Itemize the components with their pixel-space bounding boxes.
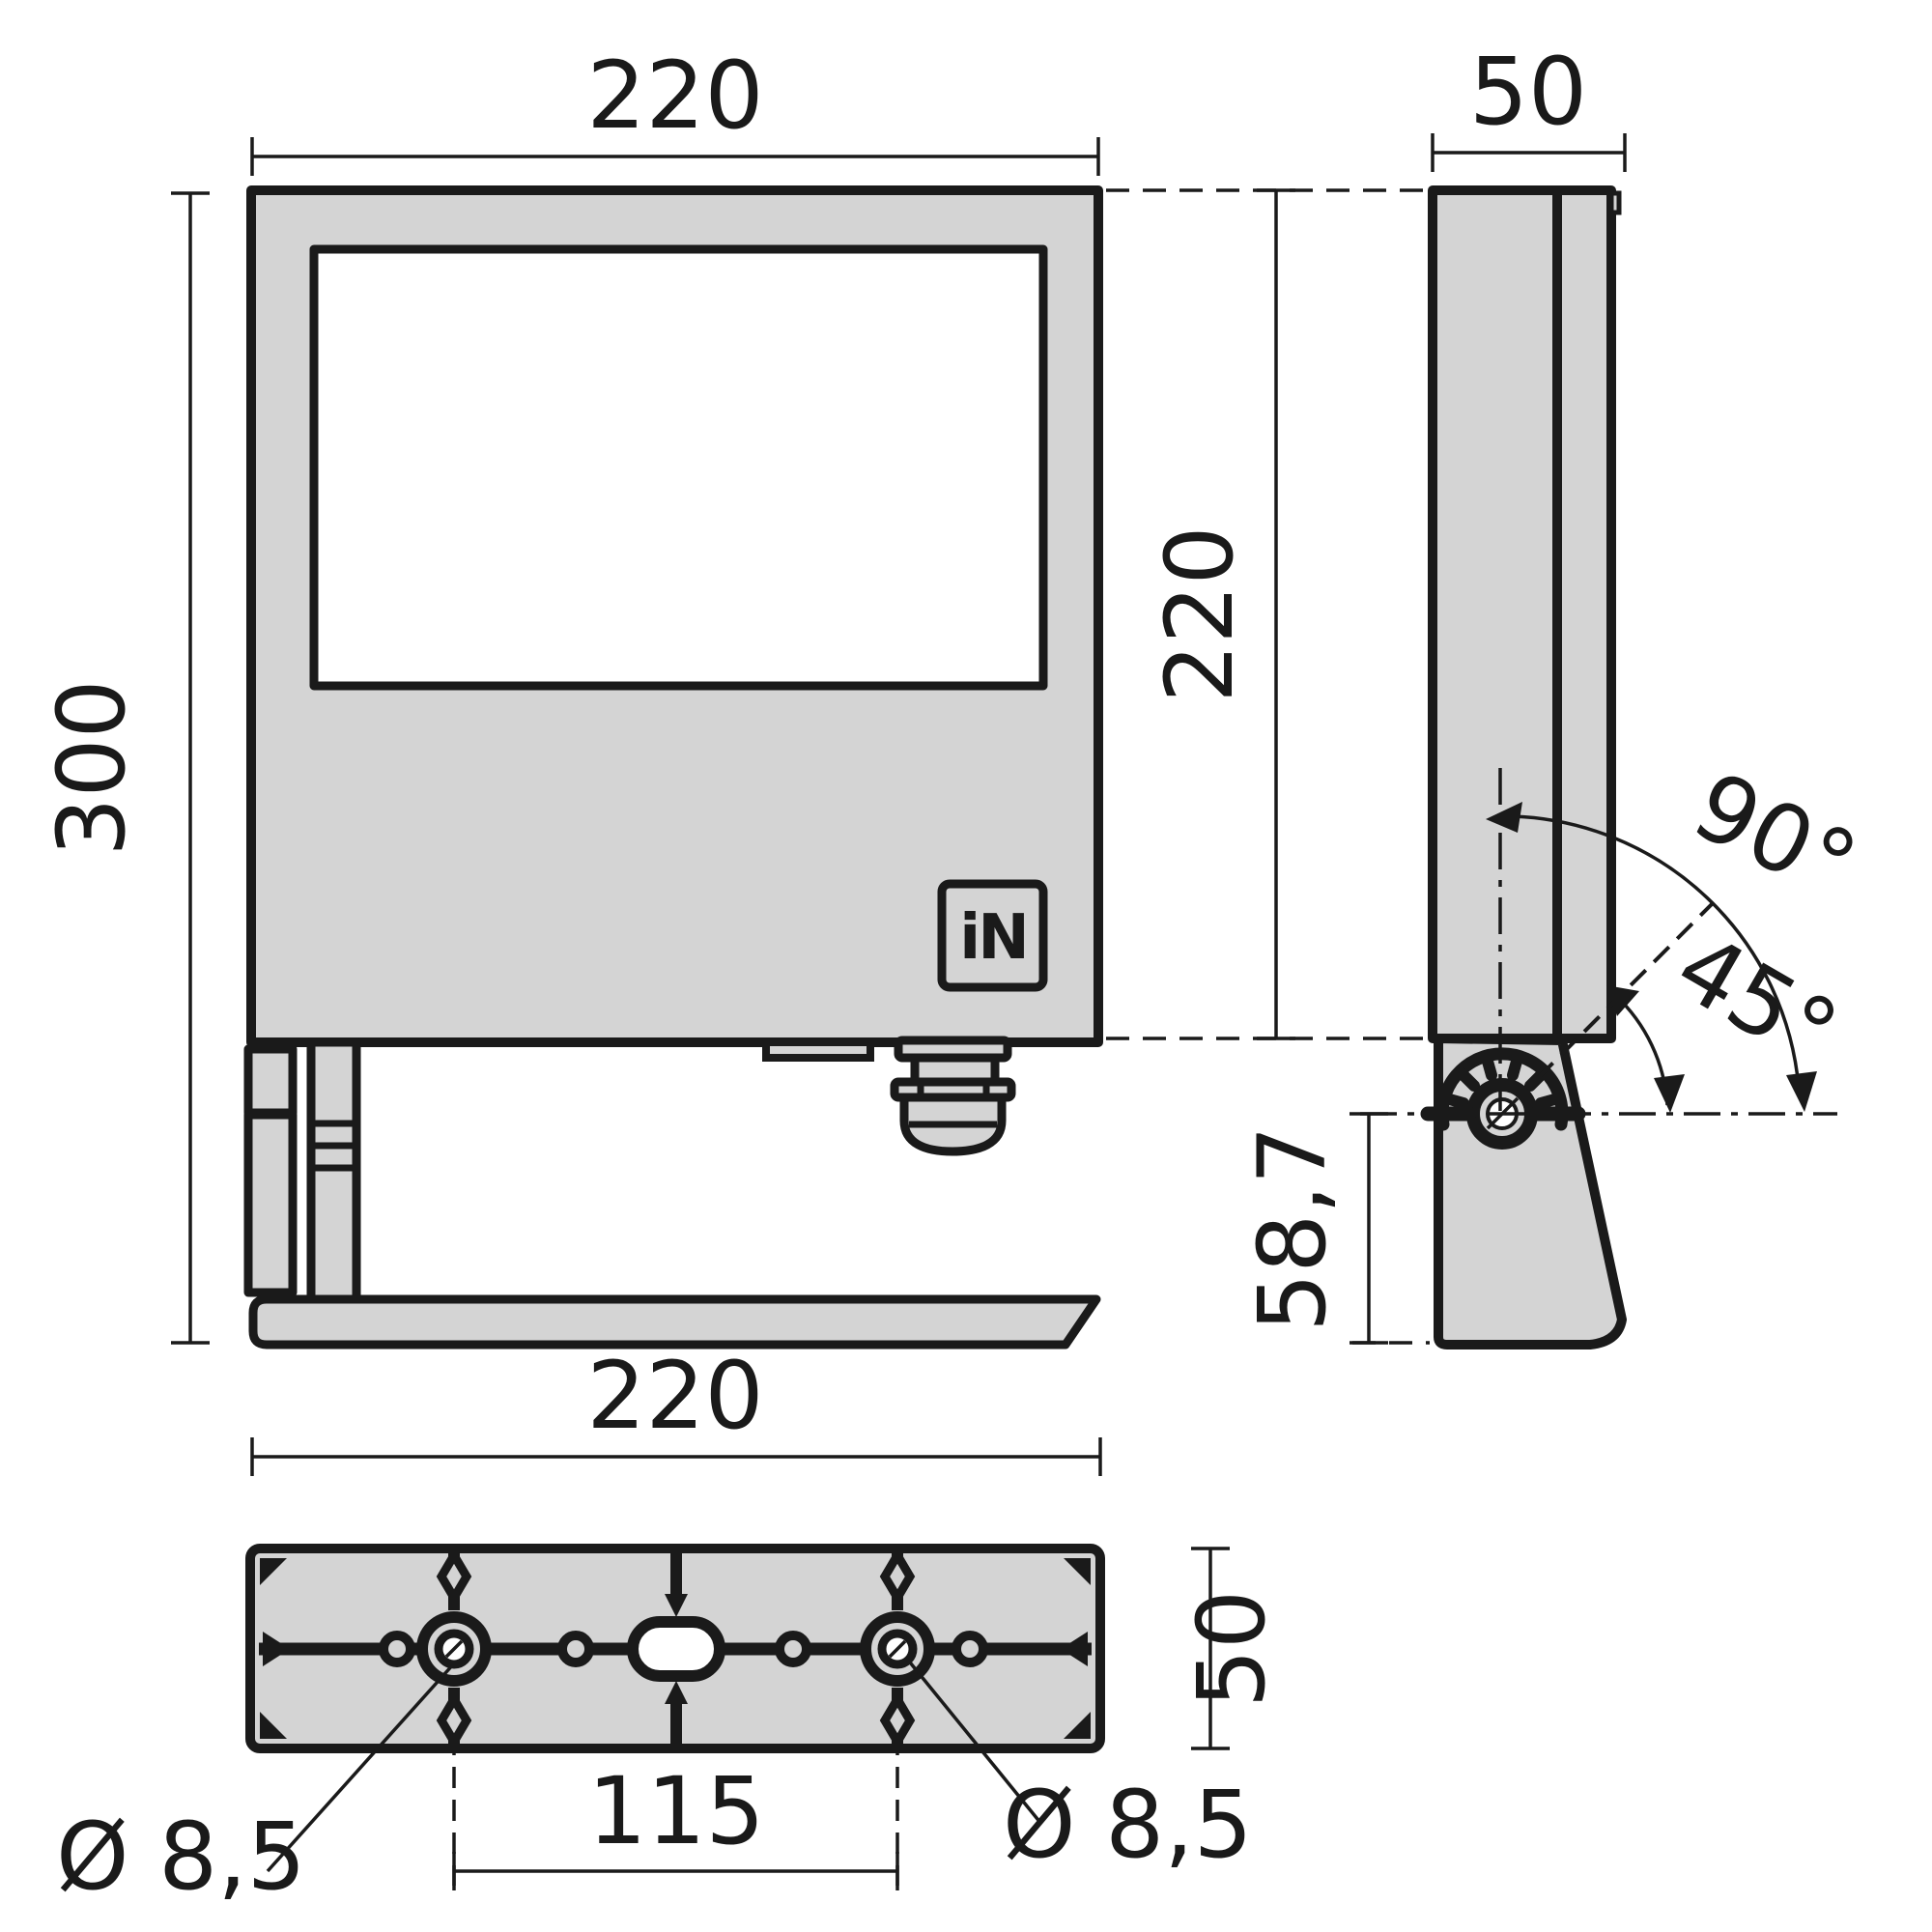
hole-spacing-label: 115 <box>587 1757 764 1865</box>
bottom-width-label: 220 <box>586 1342 763 1450</box>
side-bezel <box>1557 190 1611 1038</box>
side-housing <box>1433 190 1557 1038</box>
front-height-label: 300 <box>38 679 146 856</box>
side-width-label: 50 <box>1469 38 1587 146</box>
bezel-lip <box>1611 193 1619 213</box>
hole-diameter-left-label: Ø 8,5 <box>56 1803 306 1911</box>
bottom-tab <box>766 1042 870 1058</box>
hinge-plate-upper <box>248 1049 293 1113</box>
brand-logo-text: iN <box>959 902 1027 974</box>
obround-slot <box>633 1622 720 1676</box>
pivot-offset-label: 58,7 <box>1238 1125 1347 1332</box>
bottom-view <box>250 1548 1100 1748</box>
front-width-label: 220 <box>586 42 763 150</box>
dimension-drawing-page: iN <box>0 0 1932 1932</box>
hinge-plate-lower <box>248 1115 293 1293</box>
bottom-depth-label: 50 <box>1178 1590 1286 1708</box>
tilt-angle-label: 45° <box>1659 912 1855 1088</box>
screw-boss-right <box>866 1617 929 1681</box>
floodlight-dimension-drawing: iN <box>0 0 1932 1932</box>
hole-diameter-right-label: Ø 8,5 <box>1003 1771 1253 1879</box>
side-height-label: 220 <box>1146 526 1254 702</box>
cable-gland <box>895 1040 1011 1151</box>
front-view: iN <box>248 190 1098 1345</box>
bracket-base <box>253 1299 1096 1345</box>
side-view: 90° 45° <box>1360 190 1872 1345</box>
front-lens-window <box>314 249 1043 686</box>
arrowhead <box>1654 1074 1685 1113</box>
screw-boss-left <box>422 1617 486 1681</box>
